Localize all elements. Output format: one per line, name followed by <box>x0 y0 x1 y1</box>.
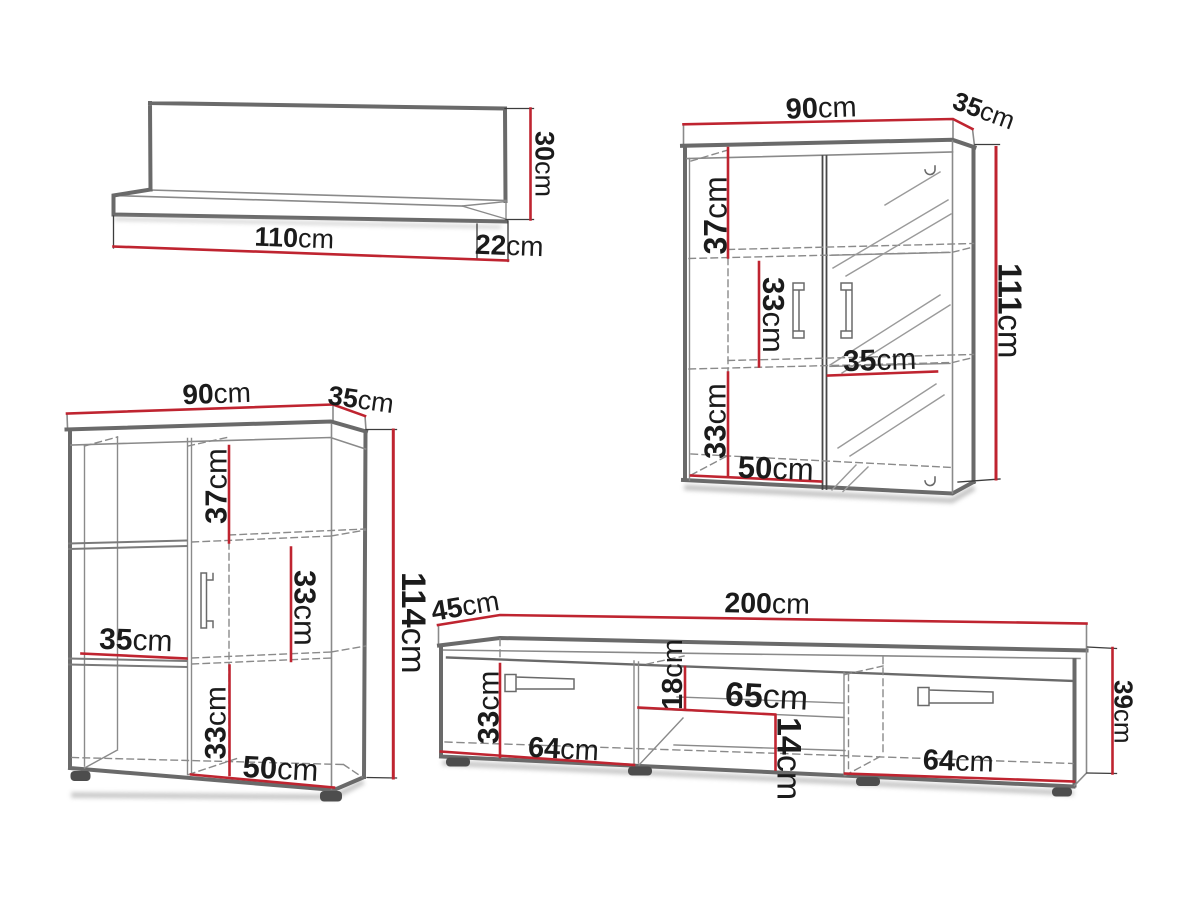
svg-text:35cm: 35cm <box>99 623 173 659</box>
svg-text:30cm: 30cm <box>530 131 560 197</box>
svg-text:35cm: 35cm <box>842 343 916 379</box>
svg-text:33cm: 33cm <box>698 383 733 459</box>
svg-text:33cm: 33cm <box>288 570 323 646</box>
svg-text:18cm: 18cm <box>657 639 689 710</box>
svg-text:33cm: 33cm <box>473 671 506 744</box>
svg-text:200cm: 200cm <box>724 587 810 620</box>
svg-text:50cm: 50cm <box>737 450 814 488</box>
svg-text:110cm: 110cm <box>254 222 335 255</box>
svg-text:33cm: 33cm <box>756 277 791 353</box>
svg-text:39cm: 39cm <box>1109 680 1139 744</box>
svg-text:114cm: 114cm <box>394 572 432 674</box>
svg-text:65cm: 65cm <box>724 675 809 717</box>
svg-text:111cm: 111cm <box>992 263 1029 358</box>
svg-text:64cm: 64cm <box>922 744 994 778</box>
svg-text:37cm: 37cm <box>199 448 234 524</box>
svg-text:33cm: 33cm <box>200 686 233 759</box>
svg-text:90cm: 90cm <box>785 91 857 125</box>
svg-text:14cm: 14cm <box>770 717 808 800</box>
svg-text:22cm: 22cm <box>475 229 545 262</box>
svg-text:37cm: 37cm <box>698 176 734 254</box>
svg-text:50cm: 50cm <box>242 749 320 788</box>
svg-text:90cm: 90cm <box>182 377 252 410</box>
svg-text:64cm: 64cm <box>527 732 600 768</box>
